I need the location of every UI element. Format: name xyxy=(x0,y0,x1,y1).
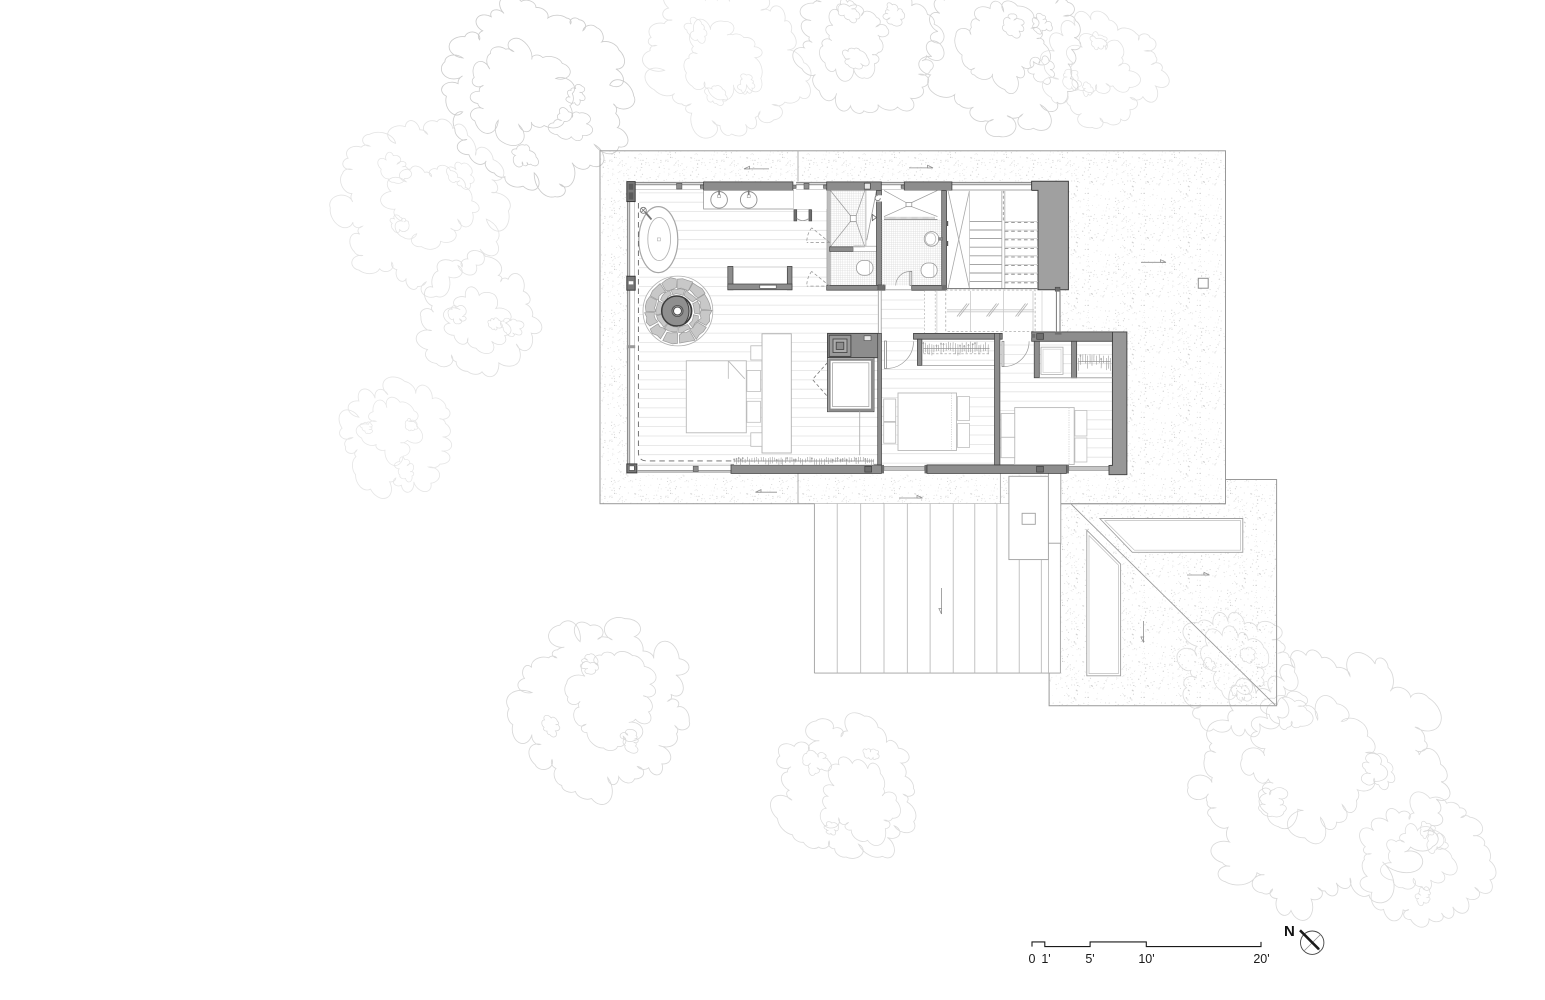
svg-text:N: N xyxy=(1284,923,1295,940)
svg-text:20': 20' xyxy=(1253,952,1269,966)
svg-text:10': 10' xyxy=(1138,952,1154,966)
svg-text:0: 0 xyxy=(1029,952,1036,966)
svg-text:1': 1' xyxy=(1041,952,1050,966)
svg-text:5': 5' xyxy=(1085,952,1094,966)
